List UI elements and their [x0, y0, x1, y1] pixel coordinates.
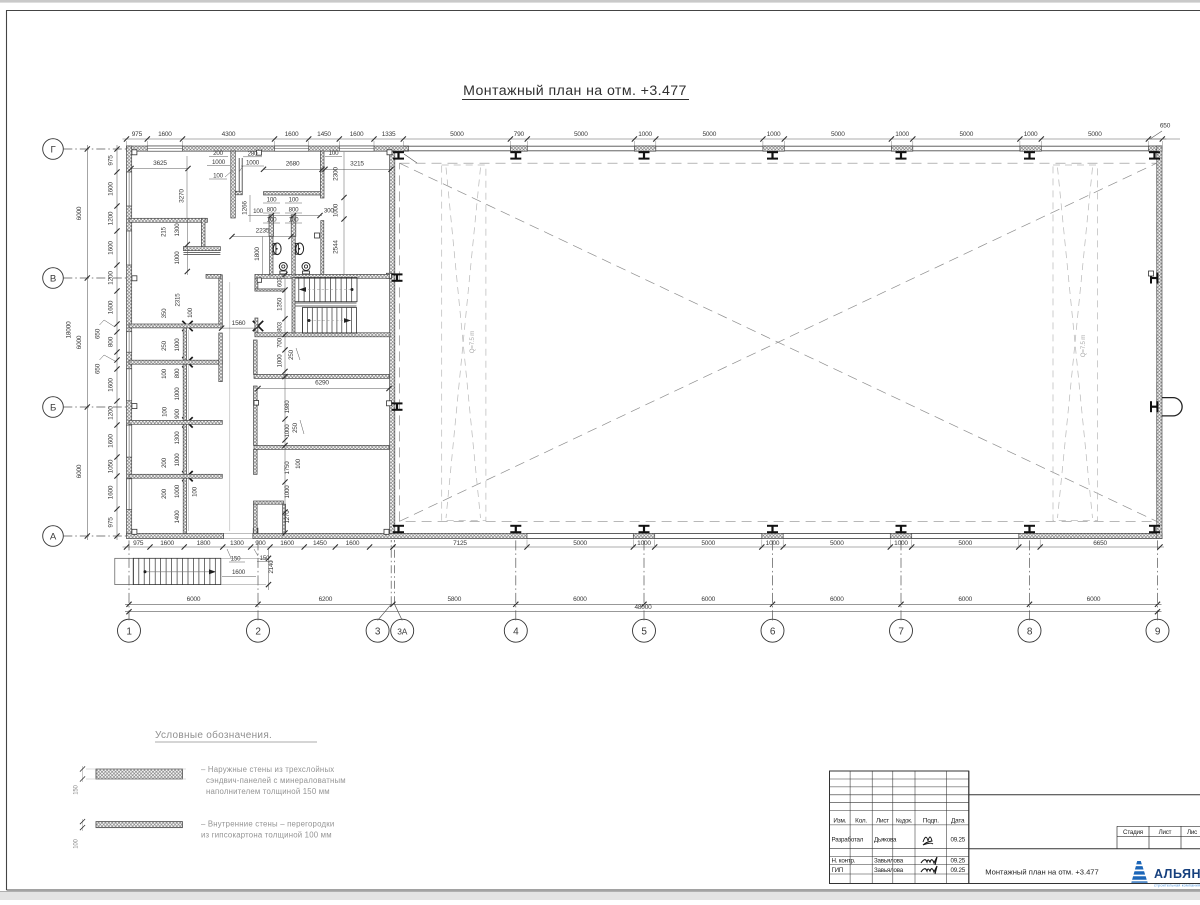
svg-text:6000: 6000 [187, 596, 201, 603]
svg-text:Монтажный план на отм. +3.477: Монтажный план на отм. +3.477 [463, 83, 687, 99]
svg-text:1600: 1600 [108, 485, 115, 499]
svg-text:Разработал: Разработал [832, 837, 864, 844]
svg-text:800: 800 [108, 336, 115, 347]
svg-text:1000: 1000 [174, 387, 181, 401]
svg-text:№док.: №док. [896, 817, 913, 824]
svg-text:1450: 1450 [313, 540, 327, 547]
svg-text:1000: 1000 [174, 338, 181, 352]
svg-text:650: 650 [95, 363, 102, 374]
svg-text:6000: 6000 [573, 596, 587, 603]
svg-text:2235: 2235 [256, 228, 270, 235]
svg-text:4: 4 [513, 626, 519, 637]
svg-text:1000: 1000 [1024, 131, 1038, 138]
svg-text:1600: 1600 [108, 182, 115, 196]
svg-text:Лист: Лист [1159, 829, 1172, 836]
svg-text:6000: 6000 [76, 206, 83, 220]
svg-text:1050: 1050 [108, 459, 115, 473]
svg-text:3625: 3625 [153, 160, 167, 167]
svg-text:100: 100 [253, 208, 263, 215]
svg-text:Q=7.5 m: Q=7.5 m [1080, 335, 1087, 358]
svg-text:5800: 5800 [447, 596, 461, 603]
svg-text:Монтажный план на отм. +3.477: Монтажный план на отм. +3.477 [985, 868, 1099, 877]
svg-text:Стадия: Стадия [1123, 829, 1143, 836]
svg-text:1300: 1300 [174, 431, 181, 445]
svg-text:Лист: Лист [876, 817, 889, 824]
svg-text:2140: 2140 [268, 560, 275, 574]
svg-text:1: 1 [126, 626, 132, 637]
svg-text:1600: 1600 [346, 540, 360, 547]
svg-text:8: 8 [1027, 626, 1033, 637]
svg-text:975: 975 [133, 540, 144, 547]
svg-text:7125: 7125 [453, 540, 467, 547]
svg-text:– Внутренние стены – перегород: – Внутренние стены – перегородки [201, 820, 334, 829]
svg-text:1600: 1600 [158, 131, 172, 138]
svg-text:975: 975 [132, 131, 143, 138]
svg-text:900: 900 [174, 408, 181, 418]
svg-text:6000: 6000 [1087, 596, 1101, 603]
svg-text:Б: Б [50, 402, 56, 413]
svg-text:1000: 1000 [638, 131, 652, 138]
svg-text:строительная компания: строительная компания [1154, 884, 1200, 888]
svg-text:1600: 1600 [108, 300, 115, 314]
svg-text:1800: 1800 [254, 247, 261, 261]
svg-text:Изм.: Изм. [833, 817, 846, 824]
svg-text:150: 150 [74, 784, 80, 794]
svg-text:5: 5 [641, 626, 647, 637]
svg-text:1266: 1266 [242, 201, 249, 215]
svg-text:2315: 2315 [175, 293, 182, 307]
svg-text:1750: 1750 [284, 461, 291, 475]
svg-text:1450: 1450 [317, 131, 331, 138]
svg-text:1600: 1600 [108, 241, 115, 255]
svg-text:А: А [50, 531, 57, 542]
svg-text:1800: 1800 [197, 540, 211, 547]
svg-text:700: 700 [277, 337, 284, 347]
svg-text:наполнителем толщиной 150 мм: наполнителем толщиной 150 мм [206, 787, 330, 796]
svg-text:1000: 1000 [284, 485, 291, 499]
svg-text:5000: 5000 [1088, 131, 1102, 138]
svg-text:48000: 48000 [634, 604, 652, 611]
svg-text:1400: 1400 [174, 510, 181, 524]
svg-text:5000: 5000 [574, 131, 588, 138]
svg-text:1600: 1600 [285, 131, 299, 138]
svg-text:6000: 6000 [830, 596, 844, 603]
svg-text:09.25: 09.25 [950, 837, 965, 844]
svg-text:1600: 1600 [350, 131, 364, 138]
svg-text:1300: 1300 [230, 540, 244, 547]
svg-text:1000: 1000 [767, 131, 781, 138]
svg-text:2544: 2544 [333, 240, 340, 254]
svg-text:650: 650 [1160, 123, 1171, 130]
svg-text:1600: 1600 [280, 540, 294, 547]
svg-text:5000: 5000 [701, 540, 715, 547]
svg-text:1980: 1980 [284, 400, 291, 414]
svg-text:5000: 5000 [573, 540, 587, 547]
svg-text:5000: 5000 [830, 540, 844, 547]
svg-text:100: 100 [192, 486, 199, 496]
svg-text:7: 7 [898, 626, 904, 637]
svg-text:100: 100 [162, 406, 169, 416]
svg-text:5000: 5000 [958, 540, 972, 547]
svg-text:Завьялова: Завьялова [874, 858, 904, 865]
svg-text:1270: 1270 [284, 510, 291, 524]
svg-text:4300: 4300 [222, 131, 236, 138]
svg-text:200: 200 [161, 488, 168, 498]
svg-text:1000: 1000 [637, 540, 651, 547]
svg-text:1600: 1600 [108, 434, 115, 448]
svg-text:Н. контр.: Н. контр. [832, 858, 856, 865]
svg-text:280: 280 [248, 150, 258, 157]
svg-text:ГИП: ГИП [832, 867, 844, 874]
svg-text:800: 800 [267, 207, 277, 214]
svg-text:Подп.: Подп. [923, 817, 939, 824]
svg-text:– Наружные стены из трехслойны: – Наружные стены из трехслойных [201, 765, 334, 774]
svg-text:1000: 1000 [895, 131, 909, 138]
svg-text:6000: 6000 [958, 596, 972, 603]
svg-text:1600: 1600 [108, 378, 115, 392]
svg-text:1000: 1000 [174, 251, 181, 265]
svg-text:1200: 1200 [108, 271, 115, 285]
svg-text:300: 300 [324, 208, 334, 215]
svg-text:Завьялова: Завьялова [874, 867, 904, 874]
svg-text:2680: 2680 [286, 161, 300, 168]
svg-text:3А: 3А [397, 626, 407, 636]
svg-text:1600: 1600 [232, 569, 246, 576]
svg-text:09.25: 09.25 [950, 858, 965, 865]
svg-text:1000: 1000 [174, 484, 181, 498]
svg-text:1200: 1200 [108, 406, 115, 420]
svg-text:650: 650 [95, 328, 102, 339]
svg-text:3: 3 [375, 626, 381, 637]
svg-text:3215: 3215 [350, 161, 364, 168]
svg-text:Дата: Дата [951, 817, 965, 824]
svg-text:1000: 1000 [894, 540, 908, 547]
svg-text:100: 100 [289, 217, 299, 224]
svg-text:Условные обозначения.: Условные обозначения. [155, 729, 272, 741]
svg-text:100: 100 [295, 458, 302, 468]
svg-text:100: 100 [161, 368, 168, 378]
svg-text:250: 250 [161, 340, 168, 350]
svg-text:Лис: Лис [1187, 829, 1197, 836]
svg-text:В: В [50, 273, 56, 284]
svg-text:1600: 1600 [160, 540, 174, 547]
svg-text:9: 9 [1155, 626, 1161, 637]
svg-text:250: 250 [288, 349, 295, 359]
svg-text:100: 100 [74, 838, 80, 848]
svg-text:350: 350 [161, 308, 168, 318]
svg-text:АЛЬЯН: АЛЬЯН [1154, 867, 1200, 881]
svg-text:1000: 1000 [766, 540, 780, 547]
svg-text:сэндвич-панелей с минераловатн: сэндвич-панелей с минераловатным [206, 776, 346, 785]
svg-text:6200: 6200 [319, 596, 333, 603]
svg-text:603: 603 [277, 277, 284, 287]
svg-text:09.25: 09.25 [950, 867, 965, 874]
svg-text:Кол.: Кол. [855, 817, 867, 824]
svg-text:6: 6 [770, 626, 776, 637]
svg-text:1000: 1000 [284, 424, 291, 438]
svg-text:100: 100 [289, 197, 299, 204]
svg-text:803: 803 [277, 321, 284, 331]
svg-text:100: 100 [267, 197, 277, 204]
svg-text:100: 100 [187, 307, 194, 317]
svg-text:100: 100 [213, 173, 223, 180]
svg-text:6000: 6000 [701, 596, 715, 603]
svg-text:6000: 6000 [76, 335, 83, 349]
svg-text:800: 800 [289, 207, 299, 214]
svg-text:150: 150 [231, 556, 241, 563]
svg-text:100: 100 [329, 150, 339, 157]
svg-text:2: 2 [255, 626, 261, 637]
svg-text:900: 900 [255, 540, 266, 547]
svg-text:2300: 2300 [333, 167, 340, 181]
svg-text:Дьякова: Дьякова [874, 837, 897, 844]
svg-text:200: 200 [213, 150, 223, 157]
svg-text:1300: 1300 [174, 223, 181, 237]
svg-text:215: 215 [161, 226, 168, 236]
svg-text:18000: 18000 [66, 321, 73, 339]
svg-text:5000: 5000 [959, 131, 973, 138]
svg-text:1335: 1335 [382, 131, 396, 138]
svg-text:1000: 1000 [246, 160, 260, 167]
svg-text:790: 790 [514, 131, 525, 138]
svg-text:6650: 6650 [1093, 540, 1107, 547]
svg-text:6290: 6290 [315, 380, 329, 387]
svg-text:200: 200 [161, 457, 168, 467]
svg-text:250: 250 [292, 422, 299, 432]
svg-text:800: 800 [174, 368, 181, 378]
svg-text:1560: 1560 [232, 320, 246, 327]
svg-text:5000: 5000 [831, 131, 845, 138]
svg-text:3270: 3270 [179, 189, 186, 203]
svg-text:1200: 1200 [108, 211, 115, 225]
svg-text:1000: 1000 [277, 354, 284, 368]
svg-text:1000: 1000 [212, 159, 226, 166]
svg-text:5000: 5000 [450, 131, 464, 138]
svg-text:1000: 1000 [174, 453, 181, 467]
svg-text:1350: 1350 [277, 297, 284, 311]
svg-text:975: 975 [108, 517, 115, 528]
svg-text:из гипсокартона толщиной 100 м: из гипсокартона толщиной 100 мм [201, 831, 332, 840]
svg-text:Q=7.5 m: Q=7.5 m [469, 331, 476, 354]
svg-text:5000: 5000 [702, 131, 716, 138]
svg-text:100: 100 [267, 217, 277, 224]
svg-text:6000: 6000 [76, 464, 83, 478]
svg-text:975: 975 [108, 155, 115, 166]
